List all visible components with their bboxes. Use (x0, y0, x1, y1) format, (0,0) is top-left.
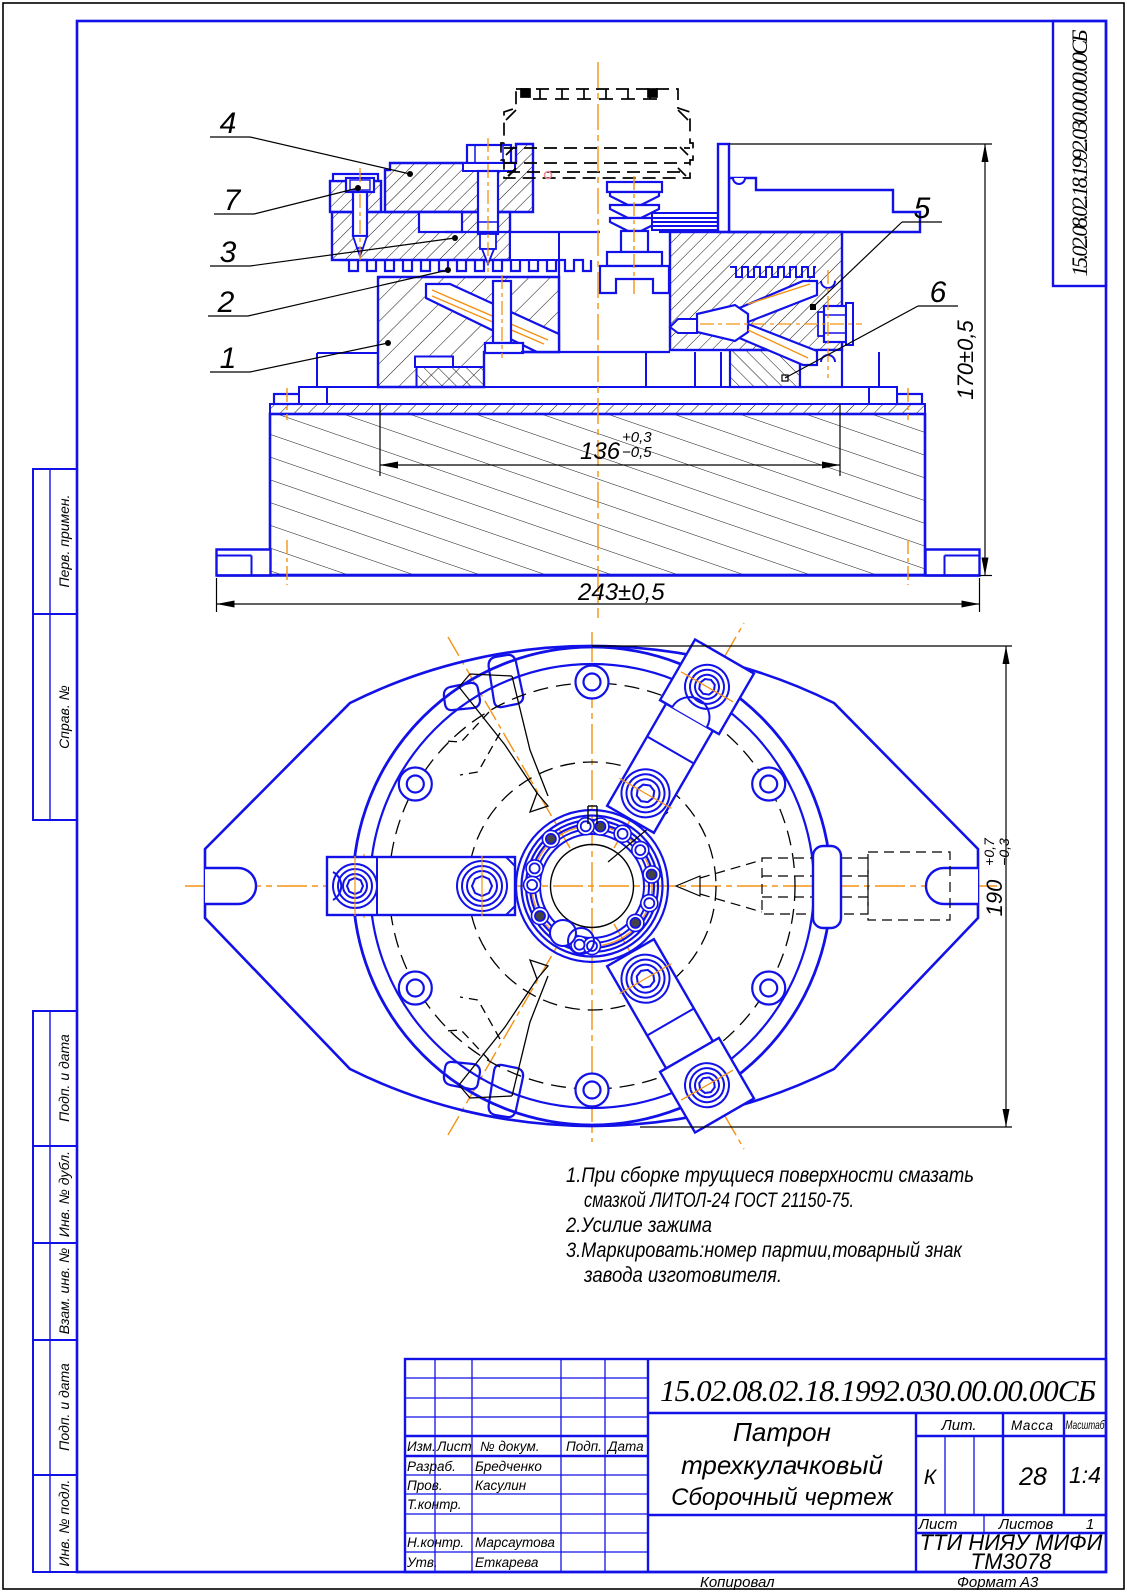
svg-text:15.02.08.02.18.1992.030.00.00.: 15.02.08.02.18.1992.030.00.00.00СБ (1067, 29, 1092, 276)
svg-text:Подп. и дата: Подп. и дата (56, 1034, 72, 1122)
svg-text:Подп. и дата: Подп. и дата (56, 1363, 72, 1451)
svg-text:Лит.: Лит. (940, 1417, 976, 1434)
svg-text:1.При сборке трущиеся поверхно: 1.При сборке трущиеся поверхности смазат… (566, 1163, 974, 1187)
svg-text:Масса: Масса (1011, 1418, 1053, 1433)
svg-text:15.02.08.02.18.1992.030.00.00.: 15.02.08.02.18.1992.030.00.00.00СБ (660, 1373, 1096, 1408)
svg-text:Патрон: Патрон (733, 1417, 831, 1447)
svg-text:Инв. № подл.: Инв. № подл. (56, 1480, 72, 1567)
svg-text:190: 190 (982, 879, 1007, 916)
svg-text:ТМ3078: ТМ3078 (971, 1549, 1053, 1574)
svg-text:Марсаутова: Марсаутова (475, 1535, 555, 1550)
svg-text:А3: А3 (1019, 1574, 1039, 1591)
svg-text:1: 1 (220, 342, 237, 375)
svg-text:2: 2 (217, 286, 235, 319)
svg-text:Изм.: Изм. (407, 1439, 436, 1454)
svg-text:7: 7 (224, 184, 242, 217)
svg-text:5: 5 (914, 192, 931, 225)
svg-text:Пров.: Пров. (407, 1478, 443, 1493)
svg-text:Сборочный чертеж: Сборочный чертеж (671, 1484, 894, 1511)
svg-text:Взам. инв. №: Взам. инв. № (56, 1248, 72, 1335)
svg-text:Бредченко: Бредченко (475, 1459, 542, 1474)
svg-text:Подп.: Подп. (566, 1439, 602, 1454)
svg-text:170±0,5: 170±0,5 (953, 320, 978, 400)
svg-text:−0,5: −0,5 (622, 444, 652, 461)
svg-text:Разраб.: Разраб. (407, 1459, 456, 1474)
svg-text:Т.контр.: Т.контр. (407, 1497, 461, 1512)
svg-text:Перв. примен.: Перв. примен. (56, 494, 72, 587)
svg-text:1:4: 1:4 (1069, 1462, 1101, 1488)
svg-text:Справ. №: Справ. № (56, 685, 72, 749)
svg-text:2.Усилие зажима: 2.Усилие зажима (565, 1213, 712, 1237)
svg-text:трехкулачковый: трехкулачковый (681, 1450, 883, 1480)
svg-text:Касулин: Касулин (475, 1478, 527, 1493)
svg-text:243±0,5: 243±0,5 (577, 579, 665, 606)
svg-text:−0,3: −0,3 (996, 838, 1012, 866)
svg-text:Масштаб: Масштаб (1066, 1420, 1105, 1432)
svg-text:Инв. № дубл.: Инв. № дубл. (56, 1151, 72, 1237)
svg-text:4: 4 (220, 107, 237, 140)
svg-text:+0,7: +0,7 (981, 837, 997, 866)
svg-text:136: 136 (580, 438, 621, 465)
svg-text:Еткарева: Еткарева (475, 1555, 539, 1570)
svg-text:Дата: Дата (606, 1439, 644, 1454)
svg-text:6: 6 (930, 276, 947, 309)
svg-text:К: К (924, 1466, 938, 1489)
svg-text:3.Маркировать:номер партии,тов: 3.Маркировать:номер партии,товарный знак (566, 1238, 963, 1262)
svg-text:№ докум.: № докум. (480, 1439, 539, 1454)
svg-text:28: 28 (1018, 1463, 1047, 1491)
svg-text:Лист: Лист (436, 1439, 472, 1454)
svg-text:3: 3 (220, 236, 237, 269)
svg-text:Н.контр.: Н.контр. (407, 1535, 464, 1550)
svg-text:смазкой ЛИТОЛ-24 ГОСТ 21150-75: смазкой ЛИТОЛ-24 ГОСТ 21150-75. (584, 1188, 854, 1212)
svg-text:завода изготовителя.: завода изготовителя. (583, 1263, 782, 1287)
svg-text:Утв.: Утв. (406, 1555, 438, 1570)
svg-text:Формат: Формат (957, 1574, 1017, 1591)
svg-text:Копировал: Копировал (700, 1574, 775, 1591)
